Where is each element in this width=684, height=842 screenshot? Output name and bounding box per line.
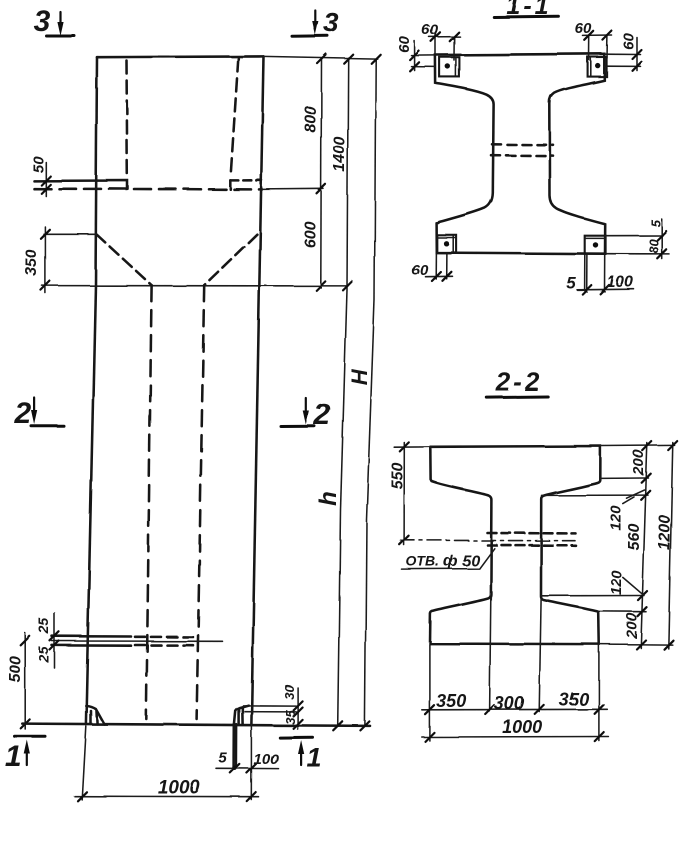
svg-text:350: 350 [559,689,589,709]
svg-text:5: 5 [566,273,576,292]
svg-text:25: 25 [36,618,52,635]
svg-text:5: 5 [648,219,663,227]
svg-text:500: 500 [8,656,25,683]
svg-text:3: 3 [323,8,338,38]
svg-text:5: 5 [218,750,227,767]
svg-text:1: 1 [5,740,22,773]
svg-text:120: 120 [608,505,625,531]
svg-text:350: 350 [23,250,40,277]
svg-text:1200: 1200 [657,515,674,551]
svg-text:1: 1 [306,742,321,772]
svg-text:300: 300 [494,693,524,713]
svg-text:35: 35 [283,709,298,724]
svg-text:2: 2 [14,398,32,431]
svg-text:h: h [315,491,342,506]
svg-text:60: 60 [411,262,428,279]
svg-text:350: 350 [436,691,466,711]
svg-text:100: 100 [607,274,634,291]
svg-text:800: 800 [303,106,320,133]
svg-text:600: 600 [302,221,319,248]
svg-text:80: 80 [646,238,661,253]
svg-text:200: 200 [624,613,641,640]
svg-text:60: 60 [621,33,638,50]
svg-text:100: 100 [253,751,279,768]
svg-text:120: 120 [608,569,625,595]
svg-text:60: 60 [396,36,413,53]
svg-text:2-2: 2-2 [495,367,543,397]
svg-text:1400: 1400 [332,137,349,173]
svg-text:1000: 1000 [158,777,201,798]
svg-text:2: 2 [313,399,331,432]
svg-text:560: 560 [626,524,643,551]
svg-text:50: 50 [30,155,47,172]
svg-text:ОТВ. ф 50: ОТВ. ф 50 [406,553,480,570]
svg-text:60: 60 [421,22,438,39]
svg-text:H: H [347,368,372,385]
svg-text:3: 3 [34,5,51,38]
svg-text:1000: 1000 [502,717,542,737]
svg-text:60: 60 [575,21,592,38]
svg-text:30: 30 [281,684,296,699]
svg-text:550: 550 [389,462,406,489]
svg-text:200: 200 [631,450,648,477]
svg-text:25: 25 [36,647,52,664]
